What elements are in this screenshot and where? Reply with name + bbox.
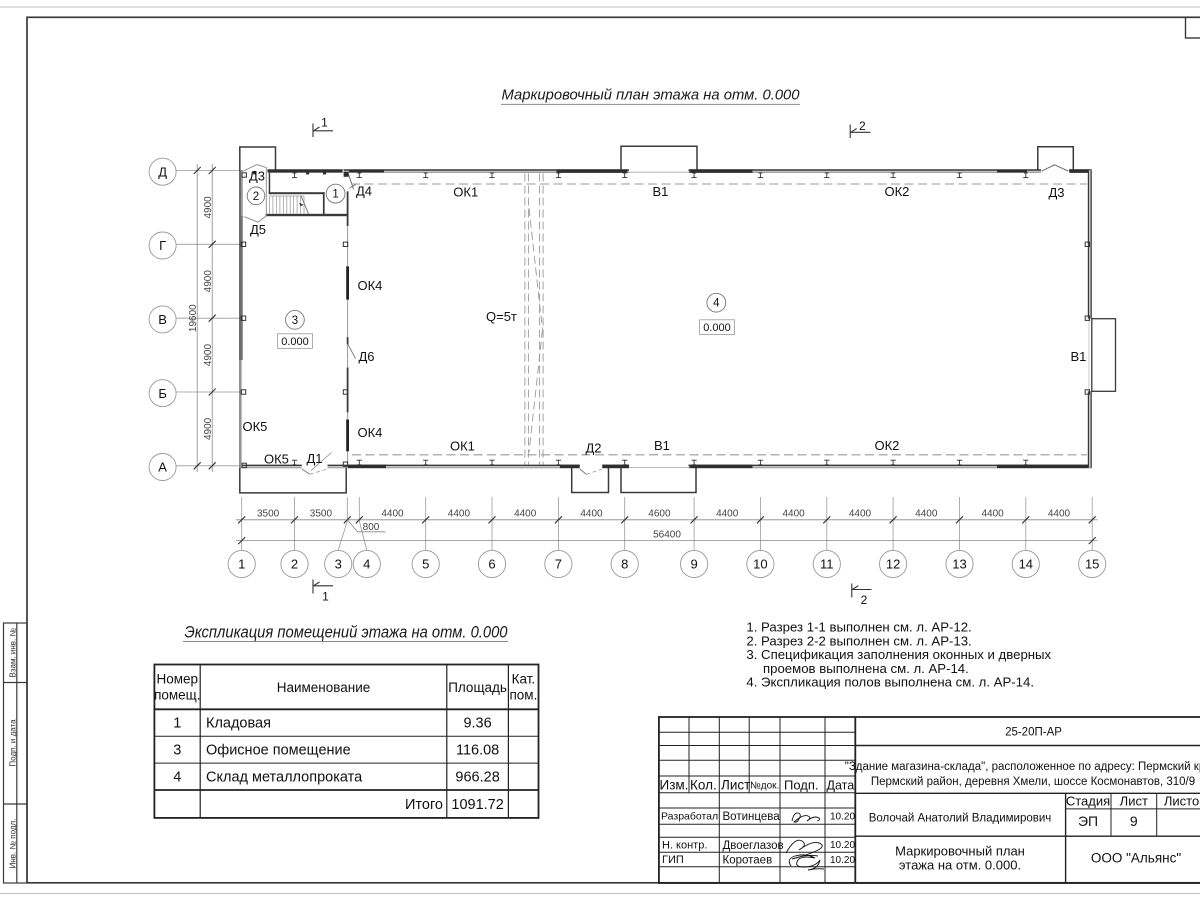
svg-text:4: 4 — [363, 557, 370, 572]
svg-text:Пермский район, деревня Хмели,: Пермский район, деревня Хмели, шоссе Кос… — [871, 776, 1195, 788]
svg-text:3. Спецификация заполнения око: 3. Спецификация заполнения оконных и две… — [746, 647, 1051, 662]
svg-text:12: 12 — [886, 557, 900, 572]
svg-text:Коротаев: Коротаев — [723, 854, 773, 866]
svg-text:11: 11 — [820, 557, 834, 572]
svg-text:4. Экспликация полов выполнена: 4. Экспликация полов выполнена см. л. АР… — [746, 675, 1034, 690]
svg-text:966.28: 966.28 — [455, 769, 499, 785]
svg-text:10.20: 10.20 — [830, 812, 855, 823]
svg-text:3500: 3500 — [257, 509, 280, 520]
svg-text:Номер: Номер — [157, 672, 199, 687]
svg-text:25-20П-АР: 25-20П-АР — [1005, 726, 1062, 738]
svg-text:9.36: 9.36 — [463, 716, 491, 732]
svg-text:этажа на отм. 0.000.: этажа на отм. 0.000. — [899, 858, 1021, 873]
svg-text:Наименование: Наименование — [277, 680, 371, 695]
svg-text:Разработал: Разработал — [661, 811, 718, 823]
svg-text:2: 2 — [859, 119, 866, 133]
svg-text:В1: В1 — [654, 438, 670, 453]
svg-text:Площадь: Площадь — [448, 680, 507, 695]
svg-text:Д3: Д3 — [249, 169, 265, 184]
svg-text:Подп.: Подп. — [784, 778, 819, 793]
svg-text:4400: 4400 — [716, 509, 739, 520]
svg-text:4400: 4400 — [580, 509, 603, 520]
svg-text:1. Разрез 1-1 выполнен см. л.: 1. Разрез 1-1 выполнен см. л. АР-12. — [746, 620, 971, 635]
svg-text:ОК2: ОК2 — [875, 438, 900, 453]
svg-text:ОК5: ОК5 — [264, 452, 289, 467]
svg-text:3: 3 — [173, 742, 181, 758]
svg-text:ООО "Альянс": ООО "Альянс" — [1091, 851, 1181, 866]
svg-text:ЭП: ЭП — [1078, 813, 1098, 829]
svg-text:Взам. инв. №: Взам. инв. № — [8, 628, 17, 678]
svg-text:Склад металлопроката: Склад металлопроката — [206, 769, 363, 785]
svg-text:4400: 4400 — [381, 509, 404, 520]
svg-text:Двоеглазов: Двоеглазов — [723, 840, 784, 852]
svg-text:ОК1: ОК1 — [453, 185, 478, 200]
svg-text:4400: 4400 — [782, 509, 805, 520]
svg-text:9: 9 — [1130, 813, 1138, 829]
svg-text:А: А — [158, 460, 167, 475]
svg-text:Кол.: Кол. — [690, 778, 717, 793]
svg-text:1: 1 — [322, 590, 329, 604]
svg-text:15: 15 — [1085, 557, 1099, 572]
svg-text:ГИП: ГИП — [662, 854, 684, 866]
svg-text:1: 1 — [238, 557, 245, 572]
svg-text:В: В — [158, 312, 167, 327]
svg-text:9: 9 — [690, 557, 697, 572]
svg-text:2: 2 — [291, 557, 298, 572]
svg-text:Экспликация помещений этажа на: Экспликация помещений этажа на отм. 0.00… — [185, 623, 508, 642]
svg-text:Н. контр.: Н. контр. — [662, 839, 707, 851]
svg-text:Лист: Лист — [721, 778, 750, 793]
svg-text:ОК5: ОК5 — [243, 419, 268, 434]
svg-text:Подп. и дата: Подп. и дата — [9, 719, 18, 767]
svg-text:"Здание магазина-склада", расп: "Здание магазина-склада", расположенное … — [845, 761, 1200, 773]
svg-text:Кладовая: Кладовая — [206, 716, 271, 732]
svg-text:2. Разрез 2-2 выполнен см. л.: 2. Разрез 2-2 выполнен см. л. АР-13. — [746, 633, 971, 648]
svg-text:0.000: 0.000 — [281, 336, 309, 348]
svg-text:Офисное помещение: Офисное помещение — [206, 742, 351, 758]
svg-text:4900: 4900 — [203, 417, 214, 440]
svg-text:4600: 4600 — [648, 509, 671, 520]
svg-text:14: 14 — [1019, 557, 1033, 572]
svg-text:Итого: Итого — [405, 797, 443, 813]
svg-text:4: 4 — [713, 298, 720, 310]
svg-text:4400: 4400 — [1048, 509, 1071, 520]
svg-text:1: 1 — [332, 189, 338, 201]
svg-text:Волочай Анатолий Владимирович: Волочай Анатолий Владимирович — [869, 813, 1052, 825]
svg-text:3: 3 — [292, 315, 298, 327]
svg-text:помещ.: помещ. — [154, 688, 200, 703]
svg-text:4900: 4900 — [203, 196, 214, 219]
svg-text:1: 1 — [173, 716, 181, 732]
svg-text:Д: Д — [158, 164, 167, 179]
svg-text:4400: 4400 — [981, 509, 1004, 520]
svg-text:4400: 4400 — [448, 509, 471, 520]
svg-text:Д6: Д6 — [359, 349, 375, 364]
svg-text:Маркировочный план этажа на от: Маркировочный план этажа на отм. 0.000 — [502, 88, 800, 104]
svg-text:10.20: 10.20 — [830, 840, 855, 851]
svg-text:№док.: №док. — [750, 781, 779, 792]
svg-text:56400: 56400 — [653, 530, 681, 541]
svg-text:Кат.: Кат. — [512, 672, 536, 687]
svg-text:10.20: 10.20 — [830, 855, 855, 866]
svg-text:3500: 3500 — [310, 509, 333, 520]
svg-text:Д3: Д3 — [1049, 185, 1065, 200]
svg-text:2: 2 — [253, 191, 259, 203]
svg-text:800: 800 — [363, 522, 380, 533]
svg-text:Б: Б — [158, 386, 167, 401]
svg-text:3: 3 — [335, 557, 342, 572]
svg-text:Лист: Лист — [1120, 794, 1148, 809]
svg-text:Д2: Д2 — [586, 441, 602, 456]
svg-text:ОК4: ОК4 — [358, 278, 383, 293]
svg-text:ОК2: ОК2 — [885, 184, 910, 199]
svg-text:В1: В1 — [653, 184, 669, 199]
svg-text:проемов выполнена см. л. АР-14: проемов выполнена см. л. АР-14. — [763, 661, 969, 676]
svg-text:ОК4: ОК4 — [358, 425, 383, 440]
svg-text:Инв. № подл.: Инв. № подл. — [9, 819, 18, 869]
svg-text:2: 2 — [861, 593, 868, 607]
svg-text:5: 5 — [422, 557, 429, 572]
svg-text:Изм.: Изм. — [660, 778, 689, 793]
svg-text:Д1: Д1 — [307, 451, 323, 466]
svg-text:Г: Г — [159, 238, 166, 253]
svg-text:1: 1 — [321, 116, 328, 130]
svg-text:13: 13 — [952, 557, 966, 572]
svg-text:Д4: Д4 — [356, 183, 372, 198]
svg-text:пом.: пом. — [509, 688, 537, 703]
svg-text:ОК1: ОК1 — [450, 439, 475, 454]
svg-text:8: 8 — [621, 557, 628, 572]
svg-text:Стадия: Стадия — [1066, 794, 1110, 809]
svg-text:4400: 4400 — [915, 509, 938, 520]
svg-text:4: 4 — [173, 769, 181, 785]
svg-text:19600: 19600 — [188, 304, 199, 332]
svg-text:116.08: 116.08 — [456, 742, 499, 758]
svg-text:4900: 4900 — [203, 270, 214, 293]
svg-text:7: 7 — [555, 557, 562, 572]
svg-text:Д5: Д5 — [250, 222, 266, 237]
svg-text:6: 6 — [488, 557, 495, 572]
svg-text:1091.72: 1091.72 — [451, 797, 503, 813]
svg-text:4900: 4900 — [203, 344, 214, 367]
svg-text:Вотинцева: Вотинцева — [723, 811, 781, 823]
svg-text:Дата: Дата — [827, 779, 855, 793]
svg-text:Листов: Листов — [1164, 794, 1200, 809]
svg-text:В1: В1 — [1071, 349, 1087, 364]
svg-text:4400: 4400 — [849, 509, 872, 520]
svg-text:Q=5т: Q=5т — [486, 309, 517, 324]
svg-text:0.000: 0.000 — [703, 322, 731, 334]
svg-text:Маркировочный план: Маркировочный план — [895, 844, 1025, 859]
svg-text:4400: 4400 — [514, 509, 537, 520]
svg-text:10: 10 — [753, 557, 767, 572]
